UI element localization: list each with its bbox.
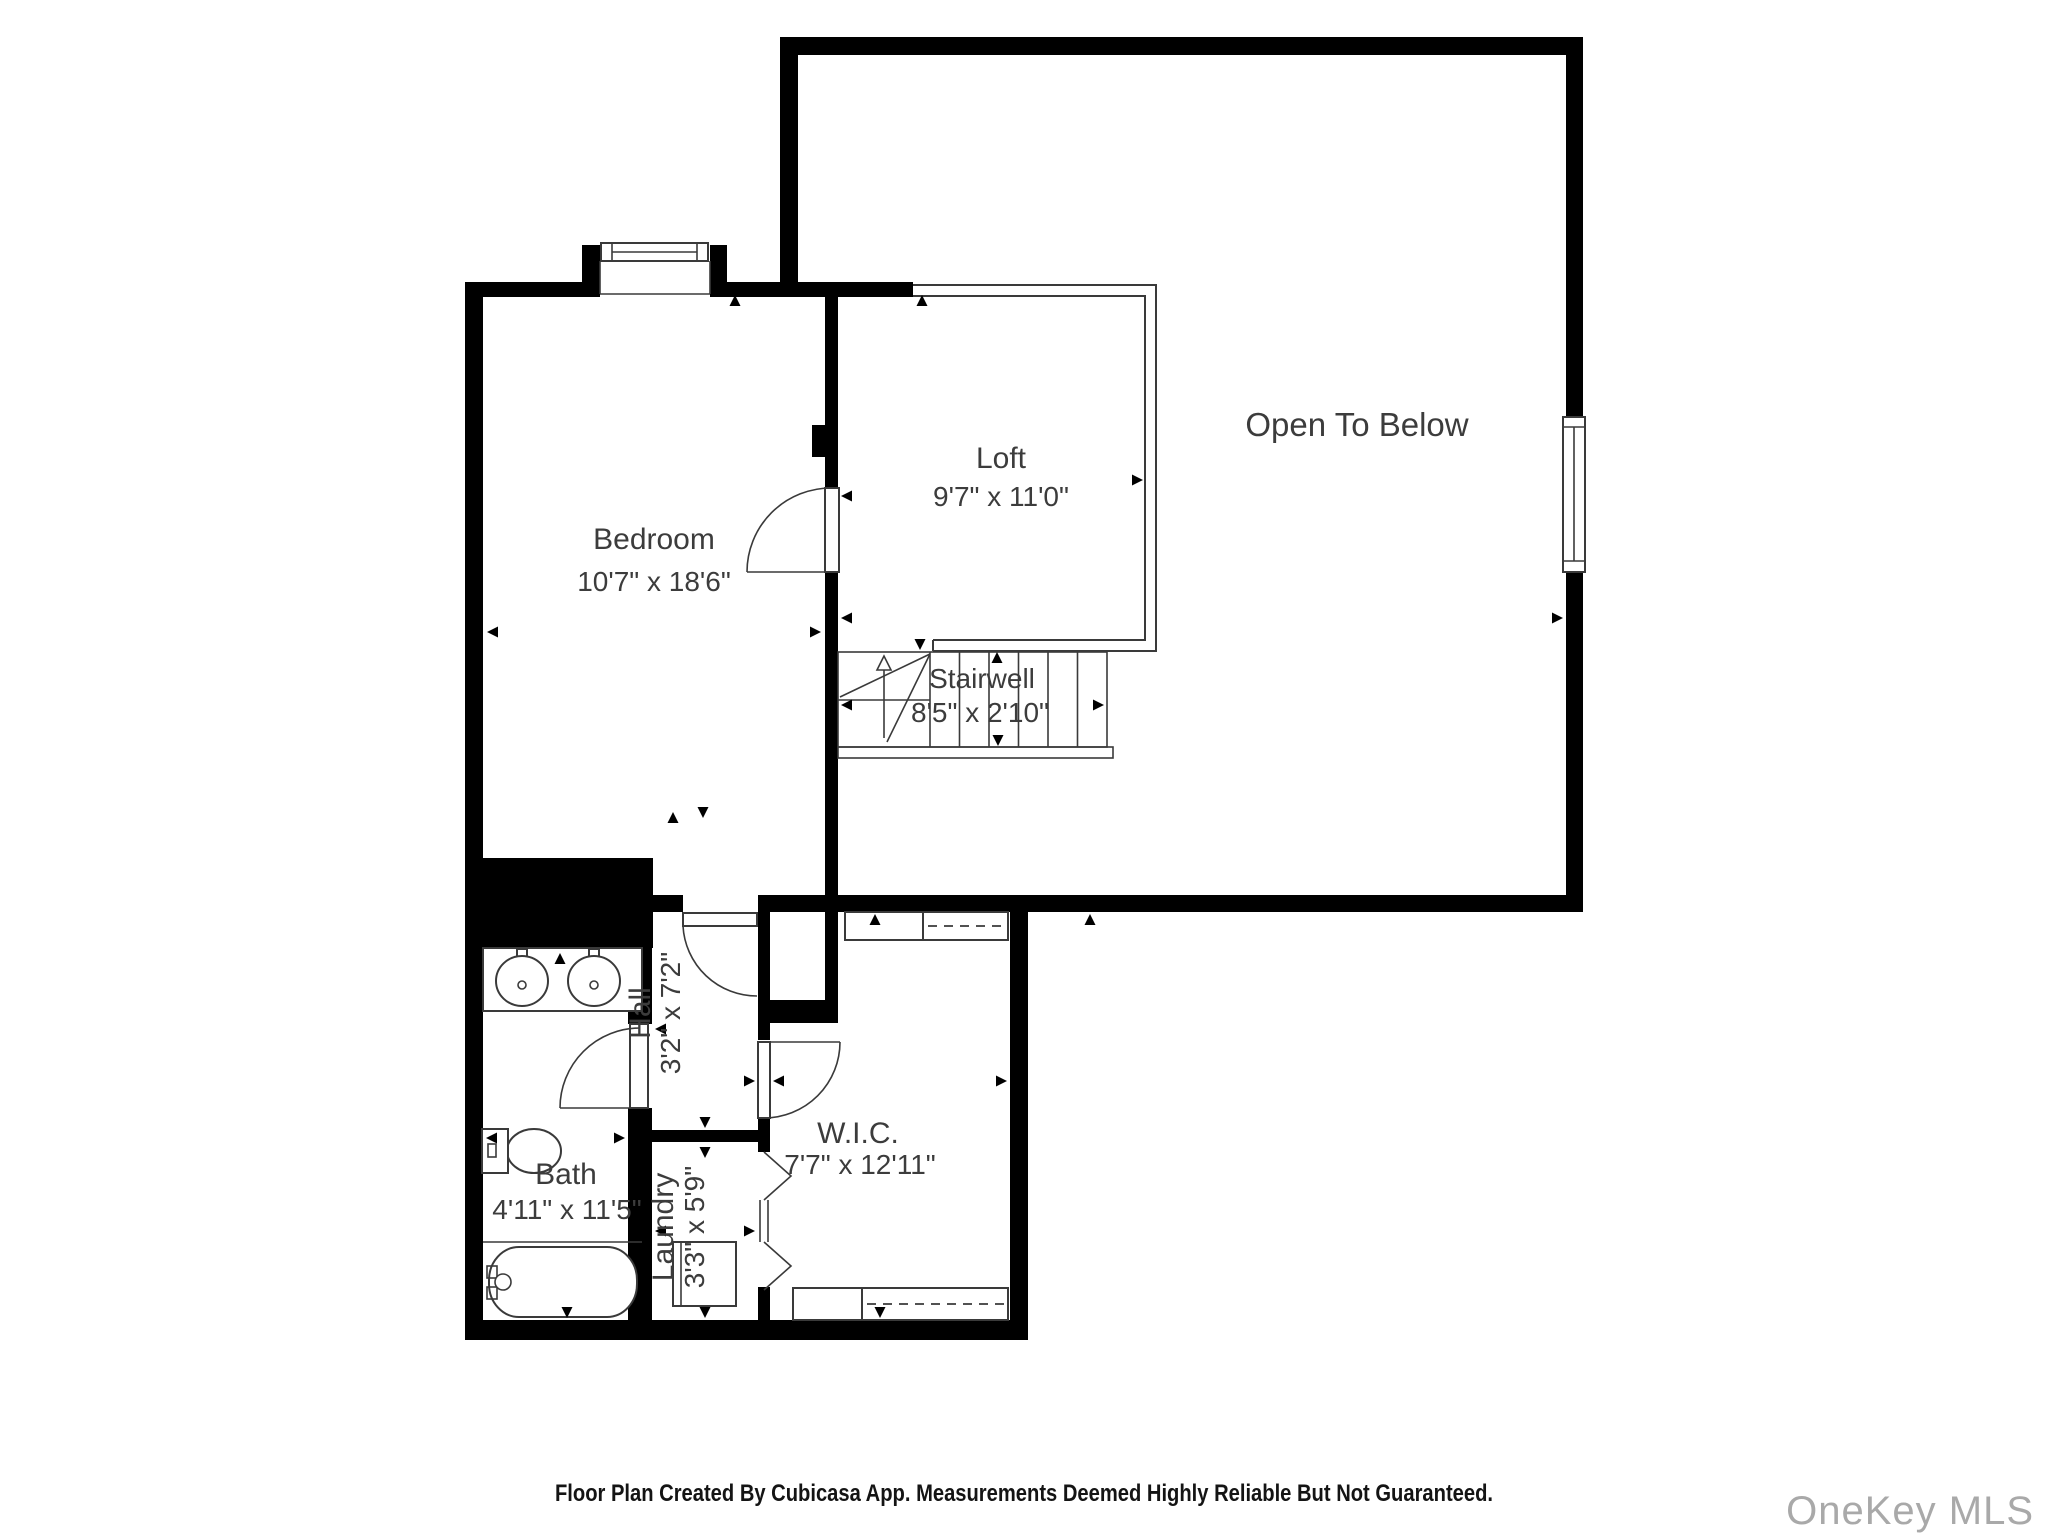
arrow-up-icon: [992, 652, 1003, 663]
wall-bedroom-bottom-block: [483, 858, 653, 948]
wall-bottom: [465, 1320, 1028, 1340]
arrow-left-icon: [773, 1076, 784, 1087]
laundry-label: Laundry: [647, 1173, 680, 1281]
wall-left: [465, 282, 483, 1340]
arrow-right-icon: [744, 1226, 755, 1237]
window-bedroom-icon: [600, 243, 710, 294]
arrow-left-icon: [841, 613, 852, 624]
arrow-left-icon: [841, 491, 852, 502]
arrow-down-icon: [700, 1307, 711, 1318]
wall-window-bump-left: [582, 245, 600, 297]
wall-chevron-stub-top: [758, 1118, 770, 1152]
wall-closet-bottom: [758, 1000, 838, 1023]
wall-right-lower: [1566, 572, 1583, 912]
arrow-down-icon: [700, 1117, 711, 1128]
watermark-onekey-mls: OneKey MLS: [1786, 1489, 2034, 1534]
wall-divider-upper: [825, 282, 838, 488]
stairwell-dimensions: 8'5" x 2'10": [911, 697, 1049, 728]
arrow-right-icon: [1132, 475, 1143, 486]
bifold-chevron-bottom-icon: [764, 1242, 791, 1290]
closet-bottom-left: [793, 1288, 862, 1320]
loft-dimensions: 9'7" x 11'0": [933, 481, 1069, 512]
arrow-down-icon: [993, 735, 1004, 746]
wic-label: W.I.C.: [817, 1117, 899, 1150]
wall-wic-right: [1010, 895, 1028, 1340]
floor-plan-drawing: Bedroom 10'7" x 18'6" Loft 9'7" x 11'0" …: [0, 0, 2048, 1536]
wall-window-bump-right: [710, 245, 727, 297]
arrow-right-icon: [996, 1076, 1007, 1087]
railing-outer-line: [913, 285, 1156, 651]
bathtub-icon: [487, 1247, 637, 1317]
closet-top-left: [845, 912, 923, 940]
arrow-down-icon: [915, 639, 926, 650]
bedroom-door-icon: [747, 488, 839, 572]
arrow-right-icon: [1552, 613, 1563, 624]
hall-label: Hall: [624, 987, 657, 1039]
arrow-right-icon: [1093, 700, 1104, 711]
bedroom-dimensions: 10'7" x 18'6": [577, 566, 731, 597]
railing-inner-line: [913, 296, 1145, 640]
fixtures: [482, 912, 1008, 1320]
wall-hall-laundry: [652, 1130, 770, 1142]
arrow-right-icon: [614, 1133, 625, 1144]
wall-right-upper: [1566, 37, 1583, 417]
arrow-down-icon: [698, 807, 709, 818]
floor-plan-page: Bedroom 10'7" x 18'6" Loft 9'7" x 11'0" …: [0, 0, 2048, 1536]
arrow-down-icon: [700, 1147, 711, 1158]
bath-label: Bath: [535, 1158, 597, 1191]
hall-door-icon: [683, 913, 757, 996]
vanity-double-sink-icon: [483, 948, 642, 1011]
stair-bottom-rail: [838, 747, 1113, 758]
arrow-left-icon: [841, 700, 852, 711]
wall-chevron-stub-bottom: [758, 1287, 770, 1320]
wall-divider-bump: [812, 425, 825, 457]
wall-bedroom-top-left: [467, 282, 582, 297]
bedroom-label: Bedroom: [593, 523, 715, 556]
loft-label: Loft: [976, 442, 1027, 475]
laundry-dimensions: 3'3" x 5'9": [679, 1166, 710, 1288]
arrow-up-icon: [1085, 914, 1096, 925]
arrow-up-icon: [668, 812, 679, 823]
wall-bigroom-bottom: [758, 895, 1583, 912]
open-to-below-label: Open To Below: [1245, 406, 1468, 443]
wall-vestibule-divider: [825, 912, 838, 1013]
wic-dimensions: 7'7" x 12'11": [784, 1149, 935, 1180]
bath-dimensions: 4'11" x 11'5": [492, 1194, 641, 1225]
loft-railing: [913, 285, 1156, 651]
arrow-left-icon: [487, 627, 498, 638]
wall-divider-lower: [825, 572, 838, 912]
hall-dimensions: 3'2" x 7'2": [655, 952, 686, 1074]
stair-direction-arrow-icon: [877, 656, 891, 670]
wall-loft-top: [838, 282, 913, 297]
wic-door-icon: [758, 1042, 840, 1118]
wall-top-left-vertical: [780, 37, 798, 297]
arrow-right-icon: [744, 1076, 755, 1087]
footer-disclaimer: Floor Plan Created By Cubicasa App. Meas…: [164, 1480, 1884, 1508]
arrow-right-icon: [810, 627, 821, 638]
wall-bedroom-door-stub: [653, 895, 683, 912]
stairwell-label: Stairwell: [929, 663, 1035, 694]
wall-top: [780, 37, 1583, 55]
window-right-icon: [1563, 417, 1585, 572]
